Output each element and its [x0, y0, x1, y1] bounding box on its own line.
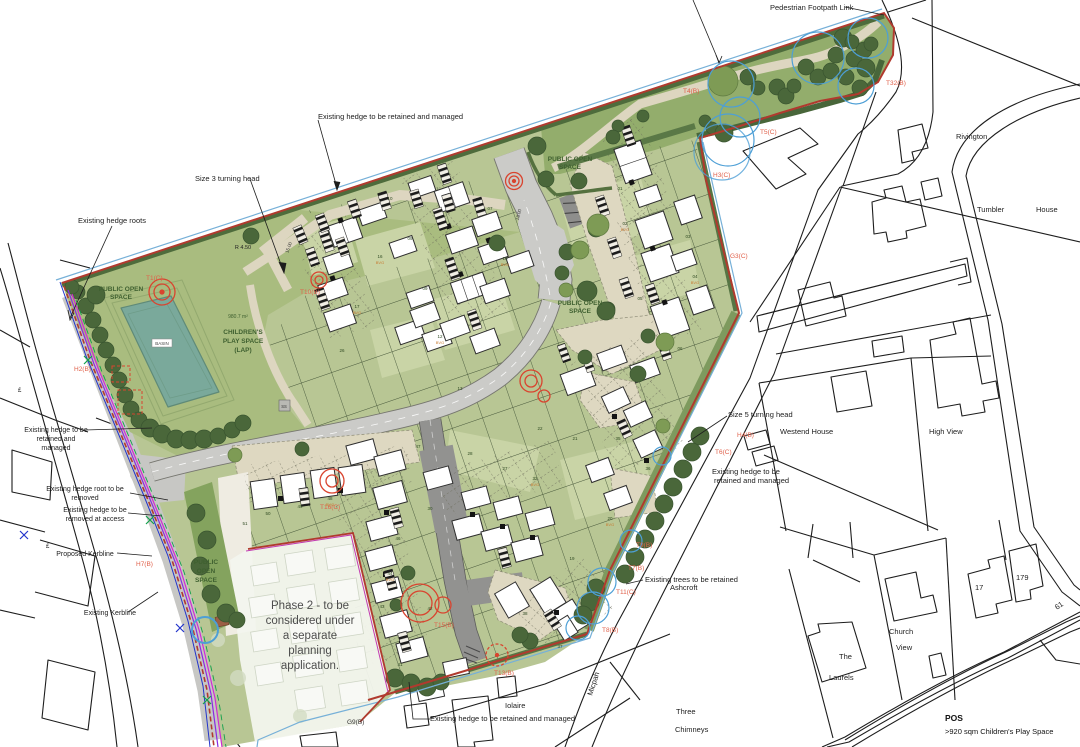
svg-text:12: 12 — [437, 334, 443, 339]
svg-text:43: 43 — [379, 604, 385, 609]
svg-text:35: 35 — [615, 436, 621, 441]
svg-text:Tumbler: Tumbler — [977, 205, 1005, 214]
svg-text:PUBLIC OPEN: PUBLIC OPEN — [548, 156, 593, 163]
svg-text:T4(B): T4(B) — [683, 88, 699, 95]
svg-text:T5(C): T5(C) — [760, 129, 777, 136]
svg-text:17: 17 — [354, 304, 360, 309]
svg-text:PUBLIC OPEN: PUBLIC OPEN — [99, 286, 144, 293]
svg-text:48: 48 — [327, 496, 333, 501]
svg-text:21: 21 — [572, 436, 578, 441]
svg-text:Existing hedge to be retained: Existing hedge to be retained and manage… — [318, 112, 463, 121]
svg-text:considered under: considered under — [266, 615, 355, 627]
svg-text:09: 09 — [422, 286, 428, 291]
svg-text:BVG: BVG — [531, 482, 539, 487]
svg-text:removed: removed — [71, 495, 98, 502]
svg-text:51: 51 — [242, 521, 248, 526]
svg-text:G3(C): G3(C) — [730, 253, 748, 260]
svg-text:>920 sqm Children's Play Space: >920 sqm Children's Play Space — [945, 727, 1053, 736]
svg-text:980.7 m²: 980.7 m² — [228, 314, 248, 320]
svg-text:16: 16 — [377, 254, 383, 259]
svg-text:H4(B): H4(B) — [737, 432, 754, 439]
svg-text:BVG: BVG — [501, 262, 509, 267]
svg-text:T9(B): T9(B) — [636, 542, 652, 549]
svg-text:SPACE: SPACE — [110, 294, 133, 301]
svg-text:Iolaire: Iolaire — [505, 701, 525, 710]
svg-text:50: 50 — [265, 511, 271, 516]
svg-text:a separate: a separate — [283, 630, 337, 642]
svg-text:BVG: BVG — [621, 227, 629, 232]
svg-text:BVG: BVG — [691, 280, 699, 285]
svg-text:Existing hedge to be: Existing hedge to be — [63, 507, 127, 514]
svg-text:13: 13 — [457, 386, 463, 391]
svg-text:BVG: BVG — [376, 260, 384, 265]
svg-text:Laurels: Laurels — [829, 673, 854, 682]
svg-text:SS: SS — [281, 404, 287, 409]
svg-text:03: 03 — [685, 234, 691, 239]
svg-text:44: 44 — [387, 571, 393, 576]
svg-text:Size 3 turning head: Size 3 turning head — [195, 174, 260, 183]
svg-text:High View: High View — [929, 427, 963, 436]
svg-text:07: 07 — [487, 206, 493, 211]
svg-text:application.: application. — [281, 660, 339, 672]
svg-text:T7(B): T7(B) — [628, 565, 644, 572]
svg-text:38: 38 — [522, 611, 528, 616]
svg-text:BVG: BVG — [353, 310, 361, 315]
svg-text:POS: POS — [945, 713, 963, 723]
svg-text:49: 49 — [297, 504, 303, 509]
svg-text:T8(B): T8(B) — [602, 627, 618, 634]
svg-text:(LAP): (LAP) — [234, 347, 251, 354]
svg-text:Existing hedge to be: Existing hedge to be — [24, 427, 88, 434]
svg-text:42: 42 — [427, 606, 433, 611]
svg-text:179: 179 — [1016, 573, 1029, 582]
svg-text:T6(C): T6(C) — [715, 449, 732, 456]
svg-text:R 4.50: R 4.50 — [235, 245, 251, 251]
svg-text:T32(B): T32(B) — [886, 80, 906, 87]
svg-text:PUBLIC: PUBLIC — [194, 559, 219, 566]
svg-text:30: 30 — [427, 506, 433, 511]
svg-text:19: 19 — [569, 556, 575, 561]
svg-text:T11(C): T11(C) — [616, 589, 636, 596]
svg-text:Existing hedge roots: Existing hedge roots — [78, 216, 146, 225]
svg-text:47: 47 — [415, 444, 421, 449]
svg-text:20: 20 — [607, 516, 613, 521]
svg-text:06: 06 — [677, 346, 683, 351]
svg-text:retained and: retained and — [37, 436, 76, 443]
svg-text:BASIN: BASIN — [155, 341, 169, 346]
svg-text:managed: managed — [41, 445, 70, 452]
svg-text:Three: Three — [676, 707, 696, 716]
svg-text:T1(C): T1(C) — [146, 275, 163, 282]
svg-text:Existing hedge to be retained: Existing hedge to be retained and manage… — [430, 714, 575, 723]
svg-text:22: 22 — [537, 426, 543, 431]
svg-text:Chimneys: Chimneys — [675, 725, 709, 734]
svg-text:H2(B): H2(B) — [74, 366, 91, 373]
svg-text:removed at access: removed at access — [66, 516, 125, 523]
svg-text:01: 01 — [617, 186, 623, 191]
svg-text:retained and managed: retained and managed — [714, 476, 789, 485]
svg-text:House: House — [1036, 205, 1058, 214]
svg-text:PUBLIC OPEN: PUBLIC OPEN — [558, 300, 603, 307]
svg-text:Church: Church — [889, 627, 913, 636]
svg-text:OPEN: OPEN — [197, 568, 216, 575]
svg-text:SPACE: SPACE — [559, 164, 582, 171]
svg-text:T15(B): T15(B) — [434, 622, 454, 629]
svg-text:The: The — [839, 652, 852, 661]
svg-text:27: 27 — [502, 466, 508, 471]
svg-text:Westend House: Westend House — [780, 427, 833, 436]
svg-text:Phase 2 - to be: Phase 2 - to be — [271, 600, 349, 612]
svg-text:Size 5 turning head: Size 5 turning head — [728, 410, 793, 419]
svg-text:SPACE: SPACE — [195, 577, 218, 584]
svg-text:Existing hedge root to be: Existing hedge root to be — [46, 486, 124, 493]
svg-text:04: 04 — [692, 274, 698, 279]
svg-text:BVG: BVG — [606, 522, 614, 527]
svg-text:02: 02 — [622, 221, 628, 226]
svg-text:G9(B): G9(B) — [347, 719, 364, 726]
svg-text:10: 10 — [502, 256, 508, 261]
svg-text:Existing hedge to be: Existing hedge to be — [712, 467, 780, 476]
svg-text:26: 26 — [339, 348, 345, 353]
svg-text:H3(C): H3(C) — [713, 172, 730, 179]
svg-text:SPACE: SPACE — [569, 308, 592, 315]
svg-text:17: 17 — [975, 583, 983, 592]
svg-text:PLAY SPACE: PLAY SPACE — [223, 338, 264, 345]
svg-text:BVG: BVG — [436, 340, 444, 345]
svg-text:T13(B): T13(B) — [494, 670, 514, 677]
svg-text:28: 28 — [467, 451, 473, 456]
svg-text:planning: planning — [288, 645, 331, 657]
svg-text:09: 09 — [407, 236, 413, 241]
svg-text:Proposed Kerbline: Proposed Kerbline — [56, 551, 114, 558]
svg-text:BVG: BVG — [386, 577, 394, 582]
svg-text:View: View — [896, 643, 913, 652]
svg-text:T10(B): T10(B) — [300, 289, 320, 296]
svg-text:Pedestrian Footpath Link: Pedestrian Footpath Link — [770, 3, 854, 12]
svg-text:Ashcroft: Ashcroft — [670, 583, 698, 592]
svg-text:32: 32 — [532, 476, 538, 481]
svg-text:H7(B): H7(B) — [136, 561, 153, 568]
svg-text:36: 36 — [645, 466, 651, 471]
svg-text:05: 05 — [637, 296, 643, 301]
svg-text:CHILDREN'S: CHILDREN'S — [223, 329, 263, 336]
svg-text:46: 46 — [395, 536, 401, 541]
svg-text:10: 10 — [387, 196, 393, 201]
svg-text:BVG: BVG — [326, 502, 334, 507]
svg-text:37: 37 — [557, 644, 563, 649]
svg-text:Existing Kerbline: Existing Kerbline — [84, 610, 136, 617]
svg-text:Rivington: Rivington — [956, 132, 987, 141]
svg-text:41: 41 — [397, 662, 403, 667]
